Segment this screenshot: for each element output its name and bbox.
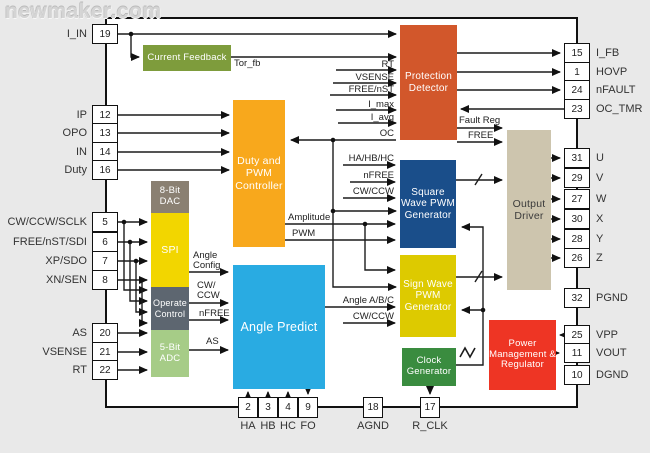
pin-label: VOUT (596, 347, 627, 359)
pin-label: VSENSE (42, 346, 87, 358)
pin-label: FREE/nST/SDI (13, 236, 87, 248)
pin-label: Y (596, 233, 603, 245)
signal-i-max: I_max (314, 100, 394, 110)
pin-label: X (596, 213, 603, 225)
block-protection-detector: Protection Detector (400, 25, 457, 140)
pin-9-fo: 9FO (295, 397, 321, 432)
pin-1-hovp: 1HOVP (564, 62, 627, 82)
pin-number: 28 (564, 229, 590, 249)
signal-rt: RT (314, 60, 394, 70)
pin-number: 15 (564, 43, 590, 63)
signal-as: AS (206, 337, 219, 347)
pin-5-sclk: CW/CCW/SCLK5 (0, 212, 118, 232)
pin-number: 25 (564, 325, 590, 345)
signal-free: FREE (468, 131, 493, 141)
signal-fault-reg: Fault Reg (459, 116, 500, 126)
pin-27-w: 27W (564, 189, 606, 209)
pin-28-y: 28Y (564, 229, 603, 249)
pin-label: nFAULT (596, 84, 636, 96)
pin-label: IN (76, 146, 87, 158)
pin-16-duty: Duty16 (0, 160, 118, 180)
signal-cw-ccw-ap: CW/ CCW (197, 281, 229, 302)
pin-number: 13 (92, 123, 118, 143)
pin-label: R_CLK (412, 420, 447, 432)
pin-24-nfault: 24nFAULT (564, 80, 636, 100)
pin-number: 30 (564, 209, 590, 229)
pin-number: 27 (564, 189, 590, 209)
block-angle-predict: Angle Predict (233, 265, 325, 389)
pin-number: 20 (92, 323, 118, 343)
pin-number: 5 (92, 212, 118, 232)
pin-label: I_FB (596, 47, 619, 59)
pin-label: OC_TMR (596, 103, 642, 115)
pin-number: 14 (92, 142, 118, 162)
pin-label: VPP (596, 329, 618, 341)
block-operate-control: Operate Control (151, 287, 189, 330)
sawtooth-icon (460, 348, 475, 357)
pin-6-sdi: FREE/nST/SDI6 (0, 232, 118, 252)
pin-20-as: AS20 (0, 323, 118, 343)
pin-10-dgnd: 10DGND (564, 365, 628, 385)
pin-18-agnd: 18AGND (360, 397, 386, 432)
block-sign-wave-pwm: Sign Wave PWM Generator (400, 255, 456, 337)
signal-cw-ccw-sign: CW/CCW (314, 312, 394, 322)
signal-ha-hb-hc: HA/HB/HC (314, 154, 394, 164)
pin-25-vpp: 25VPP (564, 325, 618, 345)
wire-pwm-buses (456, 174, 502, 282)
signal-angle-config: Angle Config (193, 251, 233, 272)
block-spi: SPI (151, 213, 189, 287)
pin-label: W (596, 193, 606, 205)
pin-11-vout: 11VOUT (564, 343, 627, 363)
pin-label: Z (596, 252, 603, 264)
pin-label: CW/CCW/SCLK (8, 216, 87, 228)
pin-number: 7 (92, 251, 118, 271)
pin-label: PGND (596, 292, 628, 304)
pin-number: 8 (92, 270, 118, 290)
pin-number: 12 (92, 105, 118, 125)
pin-number: 24 (564, 80, 590, 100)
signal-amplitude: Amplitude (288, 213, 330, 223)
pin-label: U (596, 152, 604, 164)
pin-22-rt: RT22 (0, 360, 118, 380)
wire-serial-pins (118, 222, 147, 323)
signal-i-avg: I_avg (314, 113, 394, 123)
pin-label: V (596, 172, 603, 184)
signal-tor-fb: Tor_fb (234, 59, 260, 69)
pin-number: 17 (420, 397, 440, 418)
pin-label: XP/SDO (45, 255, 87, 267)
pin-29-v: 29V (564, 168, 603, 188)
pin-19-iin: I_IN19 (0, 24, 118, 44)
signal-nfree-ap: nFREE (199, 309, 230, 319)
pin-12-ip: IP12 (0, 105, 118, 125)
pin-number: 1 (564, 62, 590, 82)
pin-label: HOVP (596, 66, 627, 78)
pin-number: 11 (564, 343, 590, 363)
pin-number: 22 (92, 360, 118, 380)
signal-angle-abc: Angle A/B/C (314, 296, 394, 306)
pin-label: AS (72, 327, 87, 339)
pin-label: Duty (64, 164, 87, 176)
signal-cw-ccw-sq: CW/CCW (314, 187, 394, 197)
wire-duty-inputs (118, 115, 229, 170)
pin-label: FO (300, 420, 315, 432)
wire-adc-inputs (118, 333, 147, 370)
pin-label: IP (77, 109, 87, 121)
signal-vsense: VSENSE (314, 73, 394, 83)
block-power-management: Power Management & Regulator (489, 320, 556, 390)
pin-number: 32 (564, 288, 590, 308)
signal-pwm: PWM (292, 229, 315, 239)
signal-nfree-sq: nFREE (314, 171, 394, 181)
pin-15-ifb: 15I_FB (564, 43, 619, 63)
pin-14-in: IN14 (0, 142, 118, 162)
pin-30-x: 30X (564, 209, 603, 229)
pin-number: 31 (564, 148, 590, 168)
signal-free-nst: FREE/nST (314, 85, 394, 95)
pin-31-u: 31U (564, 148, 604, 168)
pin-7-sdo: XP/SDO7 (0, 251, 118, 271)
block-8bit-dac: 8-Bit DAC (151, 181, 189, 213)
wire-driver-outputs (551, 158, 560, 258)
pin-label: RT (73, 364, 87, 376)
pin-23-octmr: 23OC_TMR (564, 99, 642, 119)
block-5bit-adc: 5-Bit ADC (151, 330, 189, 377)
pin-label: I_IN (67, 28, 87, 40)
pin-number: 21 (92, 342, 118, 362)
pin-label: OPO (63, 127, 87, 139)
block-duty-pwm-controller: Duty and PWM Controller (233, 100, 285, 247)
pin-13-opo: OPO13 (0, 123, 118, 143)
pin-number: 10 (564, 365, 590, 385)
block-output-driver: Output Driver (507, 130, 551, 290)
pin-number: 26 (564, 248, 590, 268)
pin-21-vsense: VSENSE21 (0, 342, 118, 362)
pin-number: 18 (363, 397, 383, 418)
watermark: newmaker.com (5, 0, 162, 24)
pin-number: 23 (564, 99, 590, 119)
pin-number: 29 (564, 168, 590, 188)
pin-label: HA (240, 420, 255, 432)
pin-number: 9 (298, 397, 318, 418)
wire-protection-outputs (457, 53, 564, 142)
pin-label: DGND (596, 369, 628, 381)
pin-26-z: 26Z (564, 248, 603, 268)
pin-label: HB (260, 420, 275, 432)
signal-oc: OC (314, 129, 394, 139)
pin-label: AGND (357, 420, 389, 432)
pin-label: XN/SEN (46, 274, 87, 286)
pin-32-pgnd: 32PGND (564, 288, 628, 308)
pin-17-rclk: 17R_CLK (417, 397, 443, 432)
block-square-wave-pwm: Square Wave PWM Generator (400, 160, 456, 248)
pin-label: HC (280, 420, 296, 432)
pin-number: 6 (92, 232, 118, 252)
pin-8-sen: XN/SEN8 (0, 270, 118, 290)
block-diagram: newmaker.com (0, 0, 650, 453)
block-current-feedback: Current Feedback (143, 45, 231, 71)
block-clock-generator: Clock Generator (402, 348, 456, 386)
pin-number: 19 (92, 24, 118, 44)
pin-number: 16 (92, 160, 118, 180)
